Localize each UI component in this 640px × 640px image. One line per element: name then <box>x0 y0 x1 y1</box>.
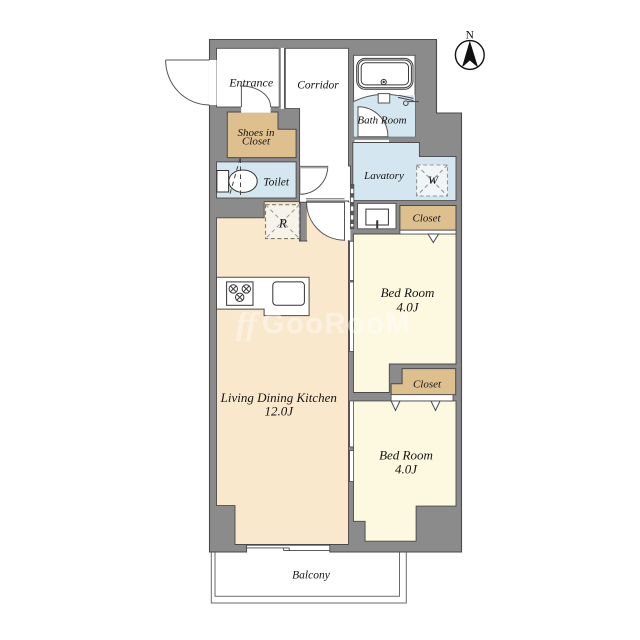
svg-text:GooRooM: GooRooM <box>262 308 411 340</box>
svg-text:W: W <box>428 173 439 187</box>
svg-text:Balcony: Balcony <box>292 570 331 582</box>
svg-text:Corridor: Corridor <box>297 80 339 92</box>
svg-text:Toilet: Toilet <box>263 176 290 188</box>
svg-text:4.0J: 4.0J <box>395 461 418 476</box>
svg-text:N: N <box>466 30 475 42</box>
svg-text:Closet: Closet <box>413 378 442 390</box>
svg-text:Closet: Closet <box>242 135 271 147</box>
svg-text:Lavatory: Lavatory <box>363 170 404 182</box>
svg-text:ff: ff <box>236 305 260 341</box>
svg-text:Entrance: Entrance <box>228 76 274 90</box>
svg-text:Bed Room: Bed Room <box>379 448 433 463</box>
svg-text:Bath Room: Bath Room <box>357 114 406 126</box>
svg-text:Bed Room: Bed Room <box>381 285 435 300</box>
svg-text:4.0J: 4.0J <box>396 299 419 314</box>
svg-text:12.0J: 12.0J <box>265 404 295 419</box>
svg-text:Closet: Closet <box>412 213 441 225</box>
svg-text:R: R <box>278 216 287 231</box>
